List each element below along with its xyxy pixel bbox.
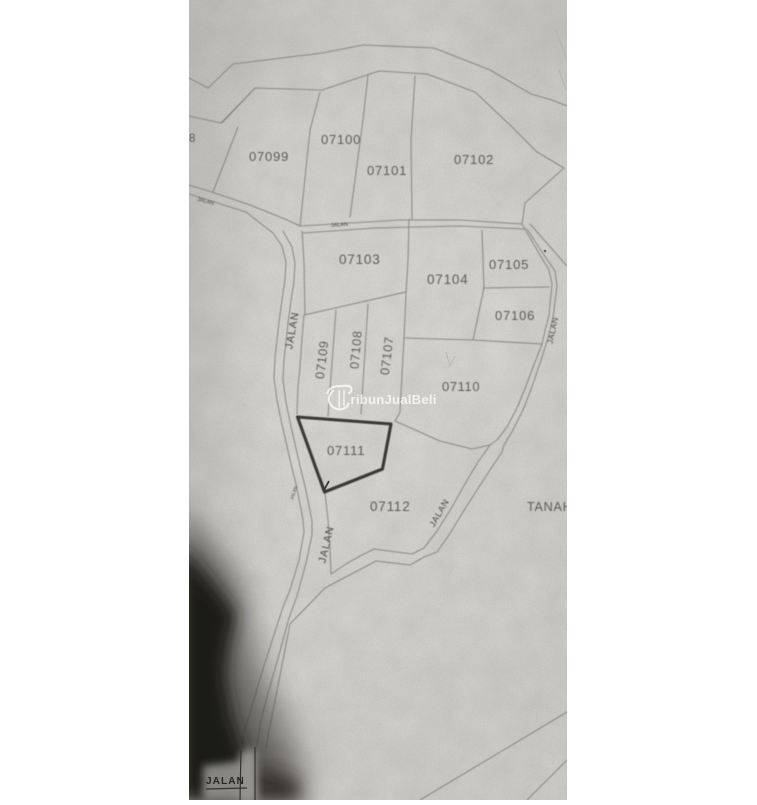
svg-text:TANAH: TANAH — [527, 500, 567, 514]
svg-text:07100: 07100 — [321, 132, 361, 147]
svg-text:07104: 07104 — [427, 272, 469, 287]
svg-text:07099: 07099 — [249, 149, 289, 164]
svg-text:07103: 07103 — [339, 252, 381, 267]
svg-text:8: 8 — [189, 133, 196, 145]
svg-text:07110: 07110 — [442, 379, 480, 394]
svg-text:JALAN: JALAN — [206, 776, 245, 787]
svg-text:07111: 07111 — [327, 443, 365, 458]
svg-text:07105: 07105 — [489, 257, 529, 272]
svg-text:JALAN: JALAN — [331, 222, 349, 229]
svg-text:07101: 07101 — [367, 163, 407, 178]
svg-text:ribunJualBeli: ribunJualBeli — [351, 392, 437, 407]
svg-text:07106: 07106 — [495, 308, 535, 323]
svg-text:07112: 07112 — [370, 499, 411, 514]
svg-text:07102: 07102 — [454, 152, 494, 167]
